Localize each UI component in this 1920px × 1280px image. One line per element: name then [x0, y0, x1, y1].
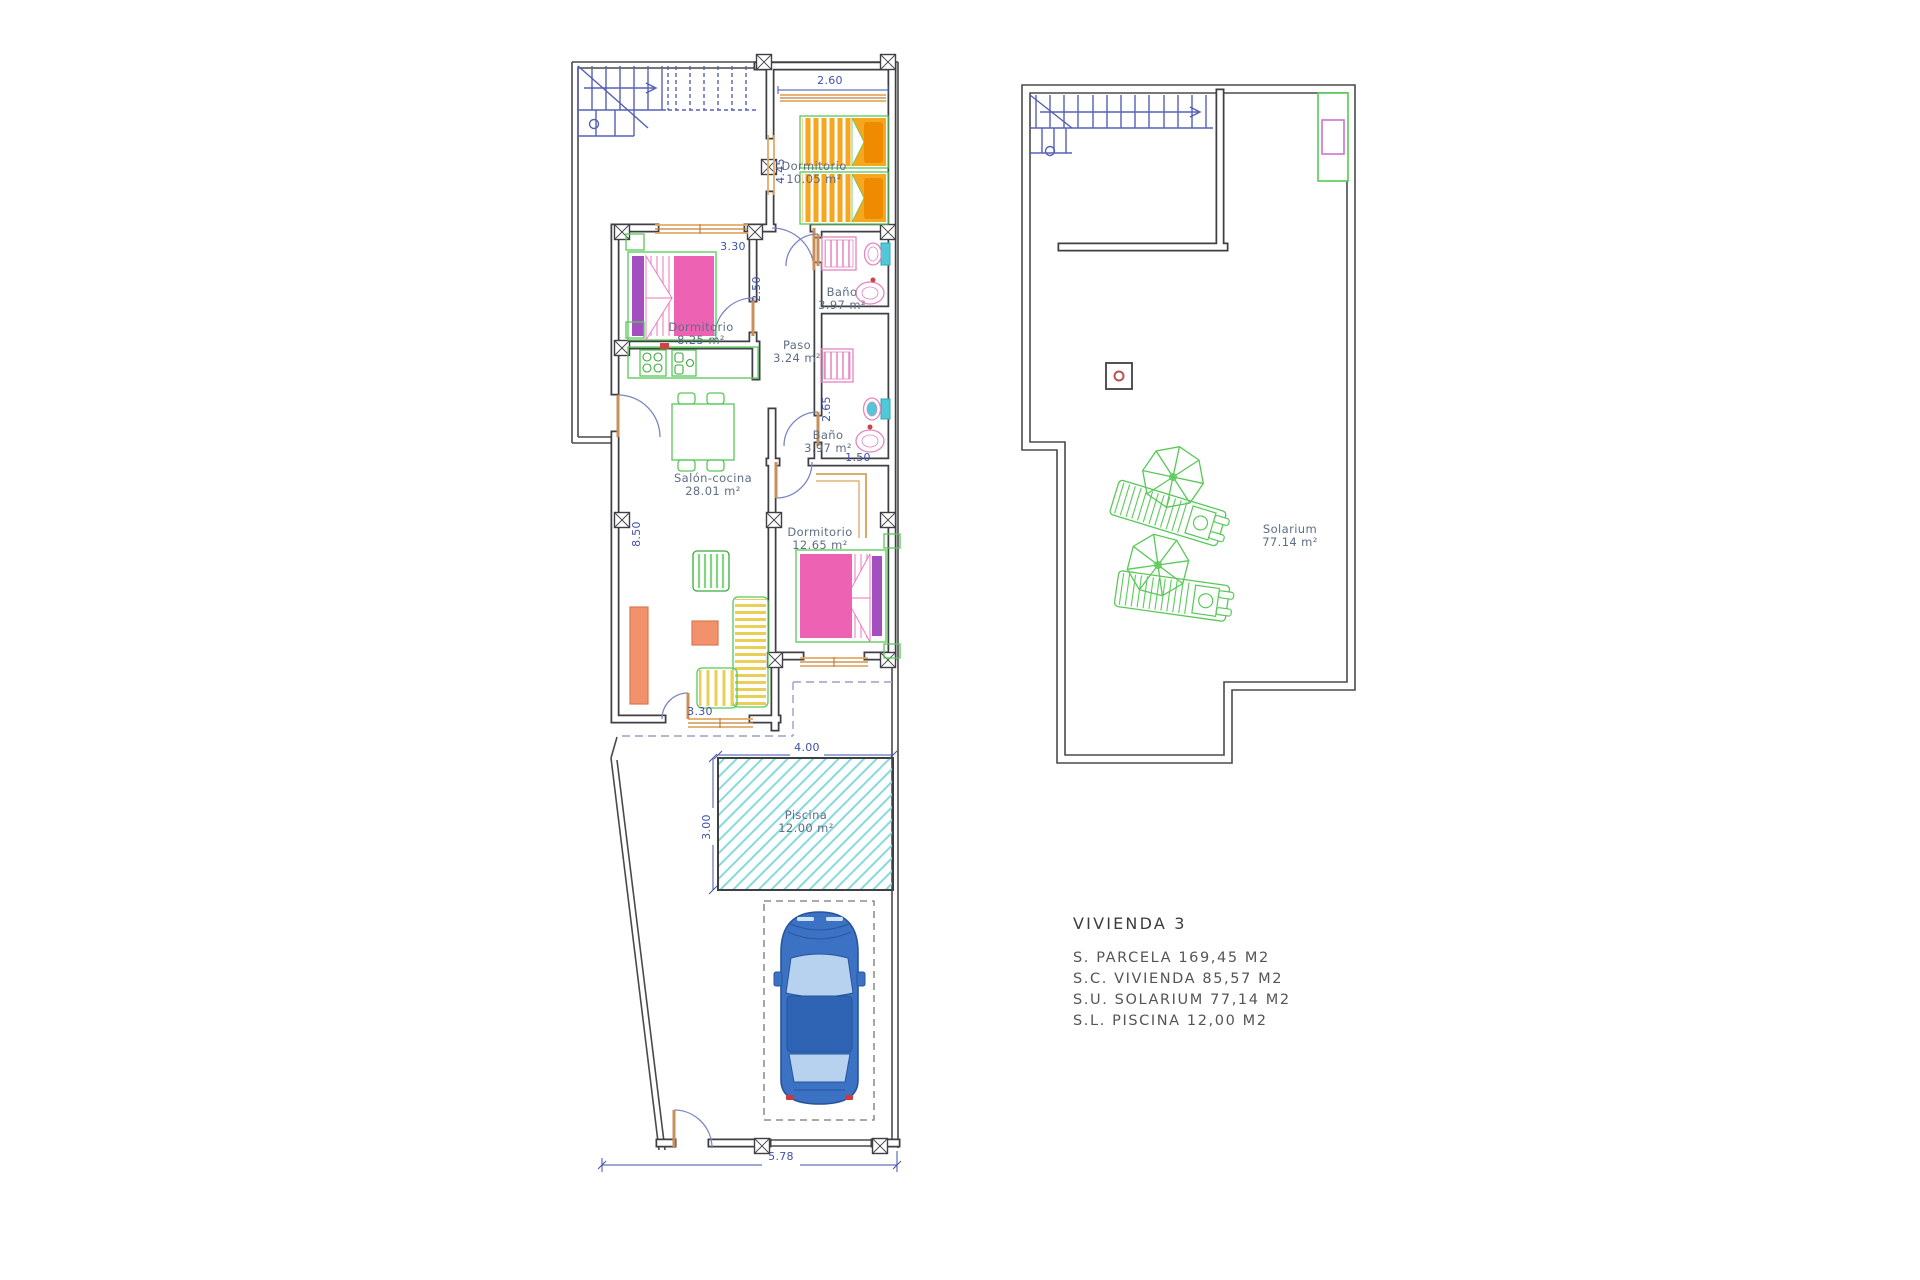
sofa	[697, 597, 768, 708]
coffee-table	[692, 621, 718, 645]
chair	[707, 460, 724, 471]
roof-inner-boundary	[1030, 93, 1347, 755]
room-label-living-area: 28.01 m²	[685, 484, 741, 498]
windshield	[786, 954, 853, 997]
taillight	[786, 1095, 794, 1100]
window-bedroom1	[780, 95, 886, 101]
dim-bath2-depth: 2.65	[820, 396, 833, 422]
room-label-bedroom3-area: 12.65 m²	[792, 538, 848, 552]
floor-plan-page: 2.60 4.45 3.30 2.50 2.65 1.50 8.50 3.30 …	[0, 0, 1920, 1280]
room-label-pool-area: 12.00 m²	[778, 821, 834, 835]
window-living	[688, 718, 753, 728]
summary-row-piscina: S.L. PISCINA 12,00 M2	[1073, 1013, 1268, 1029]
kitchen-accent	[660, 343, 669, 349]
window-bedroom3	[800, 657, 868, 667]
summary-row-vivienda: S.C. VIVIENDA 85,57 M2	[1073, 971, 1283, 987]
roof-staircase	[1030, 95, 1213, 156]
room-label-bedroom2-area: 8.25 m²	[677, 333, 725, 347]
stair-newel-post	[1046, 147, 1055, 156]
roof-plan: Solarium 77.14 m²	[1022, 85, 1355, 763]
room-label-bedroom3-name: Dormitorio	[787, 525, 852, 539]
shower	[822, 237, 856, 270]
headlight	[826, 917, 843, 921]
bedroom3-door	[776, 462, 812, 498]
roof-equipment-unit	[1318, 93, 1348, 181]
stair-newel-post	[590, 120, 599, 129]
mirror	[857, 972, 865, 986]
sideboard	[630, 607, 648, 704]
sink	[856, 425, 884, 453]
window-bedroom2	[655, 224, 748, 234]
toilet	[865, 243, 891, 265]
mattress	[800, 554, 852, 638]
car-roof	[787, 996, 852, 1052]
room-label-bath1-area: 3.97 m²	[818, 298, 866, 312]
headlight	[797, 917, 814, 921]
toilet	[864, 398, 891, 420]
pillow	[632, 256, 644, 336]
pillow	[872, 556, 882, 636]
hob	[640, 350, 666, 376]
bedroom1-door	[772, 228, 814, 270]
ground-floor-plan: 2.60 4.45 3.30 2.50 2.65 1.50 8.50 3.30 …	[572, 55, 901, 1173]
dim-pool-depth: 3.00	[700, 814, 713, 840]
car	[774, 912, 865, 1104]
dim-pool-width: 4.00	[794, 741, 820, 754]
chair	[678, 393, 695, 404]
room-label-hall-area: 3.24 m²	[773, 351, 821, 365]
room-label-bedroom1-name: Dormitorio	[781, 159, 846, 173]
room-label-hall-name: Paso	[783, 338, 811, 352]
dim-living-depth: 8.50	[630, 521, 643, 547]
chair	[707, 393, 724, 404]
dining-table	[672, 393, 734, 471]
room-label-solarium-area: 77.14 m²	[1262, 535, 1318, 549]
surface-summary: VIVIENDA 3 S. PARCELA 169,45 M2 S.C. VIV…	[1073, 914, 1291, 1029]
room-label-bath1-name: Baño	[827, 285, 858, 299]
kitchen-sink	[672, 350, 696, 376]
dim-plot-width: 5.78	[768, 1150, 794, 1163]
bedroom3-bed	[796, 550, 886, 642]
room-label-bath2-area: 3.97 m²	[804, 441, 852, 455]
room-label-pool-name: Piscina	[785, 808, 828, 822]
room-label-bedroom2-name: Dormitorio	[668, 320, 733, 334]
room-label-living-name: Salón-cocina	[674, 471, 752, 485]
dim-bedroom1-width: 2.60	[817, 74, 843, 87]
roof-outer-boundary	[1022, 85, 1355, 763]
staircase	[578, 66, 756, 136]
shower	[821, 349, 853, 382]
summary-row-solarium: S.U. SOLARIUM 77,14 M2	[1073, 992, 1291, 1008]
floor-plan-canvas: 2.60 4.45 3.30 2.50 2.65 1.50 8.50 3.30 …	[0, 0, 1920, 1280]
rear-window	[789, 1054, 850, 1082]
room-label-bath2-name: Baño	[813, 428, 844, 442]
sun-loungers	[1109, 440, 1235, 622]
pillow	[864, 122, 883, 163]
chimney	[1106, 363, 1132, 389]
plot-gate-door	[674, 1110, 712, 1148]
room-label-bedroom1-area: 10.05 m²	[786, 172, 842, 186]
dim-hall-depth: 2.50	[750, 276, 763, 302]
taillight	[845, 1095, 853, 1100]
summary-row-parcela: S. PARCELA 169,45 M2	[1073, 950, 1270, 966]
entrance-door	[618, 395, 660, 437]
roof-stairwell-walls	[1062, 93, 1224, 247]
bedroom3-furniture	[796, 474, 900, 658]
armchair	[693, 551, 729, 591]
dim-bedroom2-width: 3.30	[720, 240, 746, 253]
chair	[678, 460, 695, 471]
room-label-solarium-name: Solarium	[1263, 522, 1317, 536]
mirror	[774, 972, 782, 986]
summary-title: VIVIENDA 3	[1073, 914, 1187, 933]
dim-living-window: 3.30	[687, 705, 713, 718]
pillow	[864, 178, 883, 219]
